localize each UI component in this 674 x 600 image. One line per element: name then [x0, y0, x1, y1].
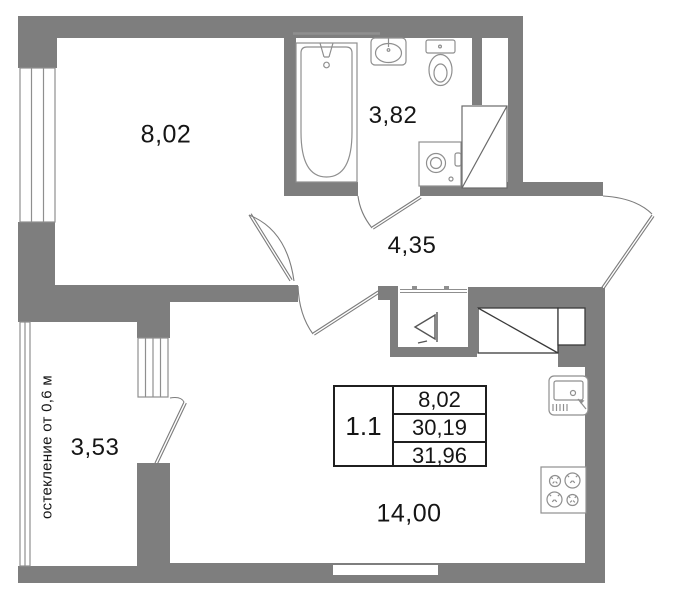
stove	[541, 467, 586, 513]
glazing-balcony	[20, 322, 30, 566]
wash-basin	[371, 38, 406, 65]
apartment-info-table: 1.1 8,02 30,19 31,96	[333, 385, 487, 467]
floor-plan: 8,02 3,82 4,35 3,53 14,00 остекление от …	[0, 0, 674, 600]
bathtub	[296, 43, 357, 182]
room-door	[249, 214, 294, 281]
entrance-door	[600, 196, 654, 291]
kitchen-sink	[549, 376, 588, 415]
living-area-label: 14,00	[376, 500, 441, 529]
window-balcony	[138, 338, 168, 397]
apartment-area-value: 30,19	[394, 415, 485, 443]
bathroom-door	[358, 196, 421, 229]
living-area-value: 8,02	[394, 387, 485, 415]
apartment-type: 1.1	[335, 387, 394, 465]
hall-door	[298, 286, 379, 335]
bedroom-area-label: 8,02	[141, 121, 192, 150]
total-area-value: 31,96	[394, 443, 485, 469]
balcony-glazing-note: остекление от 0,6 м	[39, 375, 56, 519]
washing-machine	[419, 142, 461, 186]
panel-niche	[400, 286, 467, 293]
hallway-area-label: 4,35	[388, 232, 437, 260]
plan-linework	[0, 0, 674, 600]
wardrobe	[478, 308, 585, 353]
balcony-area-label: 3,53	[71, 434, 120, 462]
toilet	[426, 40, 455, 86]
balcony-door	[155, 398, 186, 465]
panel-symbol	[415, 312, 437, 343]
window-bedroom	[20, 68, 55, 222]
vent-shaft	[462, 106, 507, 188]
bathroom-area-label: 3,82	[369, 102, 418, 130]
